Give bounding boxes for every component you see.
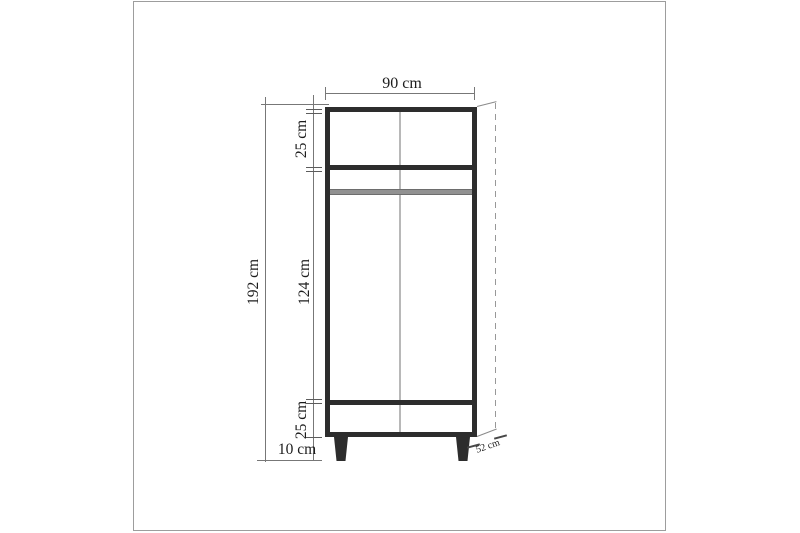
- width-dimension-line: [325, 93, 475, 94]
- diagram-canvas: 90 cm 25 cm 192 cm 124 cm 25 cm 10 cm 52…: [0, 0, 800, 533]
- top-shelf-panel: [325, 165, 477, 170]
- top-section-dimension-label: 25 cm: [294, 119, 310, 159]
- floor-extension-line: [257, 460, 322, 461]
- hanging-rod: [330, 189, 472, 195]
- wardrobe-bottom-panel: [325, 432, 477, 437]
- door-divider-line: [399, 112, 401, 432]
- section-tick: [306, 109, 322, 110]
- width-dimension-label: 90 cm: [362, 76, 442, 92]
- section-tick: [306, 167, 322, 168]
- total-height-dimension-label: 192 cm: [246, 257, 262, 307]
- depth-back-edge-dashed-line: [495, 103, 496, 433]
- drawer-section-dimension-label: 25 cm: [294, 400, 310, 440]
- section-tick: [306, 113, 322, 114]
- section-heights-dimension-line: [313, 95, 314, 460]
- wardrobe-left-side: [325, 107, 330, 437]
- leg-height-dimension-label: 10 cm: [272, 442, 322, 458]
- middle-section-dimension-label: 124 cm: [297, 257, 313, 307]
- top-extension-line: [261, 104, 329, 105]
- section-tick: [306, 171, 322, 172]
- wardrobe-right-side: [472, 107, 477, 437]
- wardrobe-front-view: [325, 107, 477, 437]
- width-dimension-tick-right: [474, 87, 475, 100]
- drawer-top-panel: [325, 400, 477, 405]
- width-dimension-tick-left: [325, 87, 326, 100]
- wardrobe-top-panel: [325, 107, 477, 112]
- total-height-dimension-line: [265, 97, 266, 462]
